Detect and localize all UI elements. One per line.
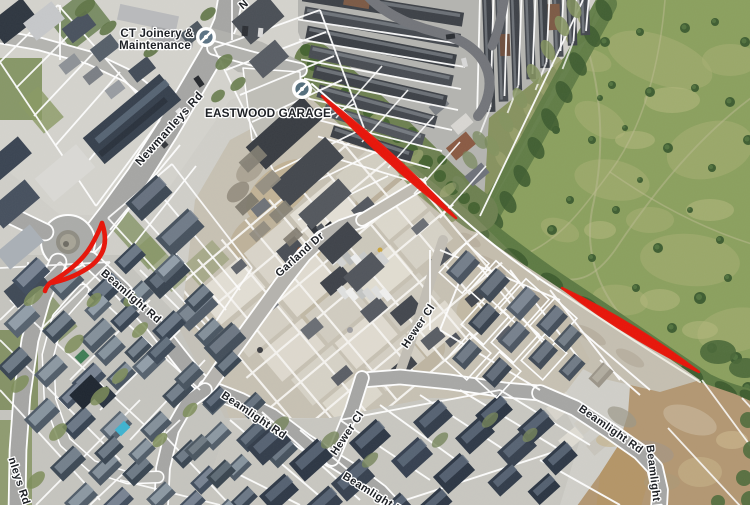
svg-text:CT Joinery &: CT Joinery & (120, 28, 193, 40)
svg-text:EASTWOOD GARAGE: EASTWOOD GARAGE (205, 106, 331, 120)
svg-text:Maintenance: Maintenance (119, 40, 191, 52)
